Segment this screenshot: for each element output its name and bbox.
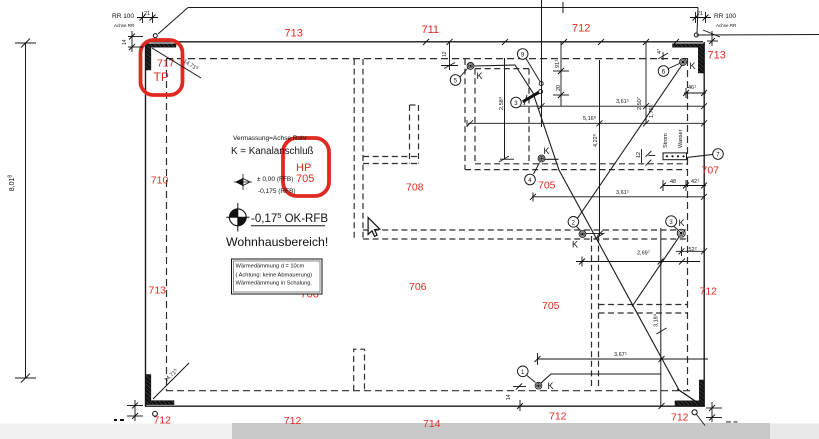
svg-text:TP: TP	[154, 70, 169, 84]
svg-text:711: 711	[422, 24, 440, 36]
svg-text:Strom: Strom	[663, 133, 669, 148]
svg-text:712: 712	[284, 415, 302, 427]
svg-text:Wohnhausbereich!: Wohnhausbereich!	[226, 235, 328, 249]
svg-text:K: K	[572, 240, 578, 250]
svg-text:K: K	[690, 61, 696, 71]
svg-text:712: 712	[671, 412, 689, 424]
svg-text:714: 714	[423, 418, 441, 430]
svg-text:Vermassung=Achse Rohr: Vermassung=Achse Rohr	[233, 135, 308, 142]
svg-text:706: 706	[409, 281, 427, 293]
svg-text:20: 20	[556, 85, 562, 91]
svg-text:21: 21	[697, 11, 703, 17]
svg-text:705: 705	[538, 180, 556, 192]
svg-text:712: 712	[549, 411, 567, 423]
svg-text:K: K	[679, 218, 685, 228]
svg-text:-0,175 OK-RFB: -0,175 OK-RFB	[251, 211, 328, 225]
svg-text:707: 707	[702, 165, 720, 177]
svg-text:713: 713	[149, 285, 167, 297]
svg-text:K: K	[477, 71, 483, 81]
svg-text:712: 712	[572, 23, 590, 35]
svg-text:Achse RR: Achse RR	[716, 23, 737, 28]
svg-text:± 0,00 (FFB): ± 0,00 (FFB)	[257, 176, 293, 183]
svg-text:705: 705	[542, 300, 560, 312]
svg-text:712: 712	[700, 286, 718, 298]
svg-text:12: 12	[636, 152, 642, 158]
svg-text:Wasser: Wasser	[678, 129, 684, 148]
svg-text:713: 713	[708, 50, 726, 62]
svg-text:( Achtung: keine Abmauerung): ( Achtung: keine Abmauerung)	[236, 272, 313, 278]
svg-text:K: K	[548, 381, 554, 391]
svg-text:Wärmedämmung d = 10cm: Wärmedämmung d = 10cm	[236, 263, 305, 269]
svg-text:14: 14	[506, 394, 512, 400]
svg-text:708: 708	[406, 182, 424, 194]
svg-text:RR 100: RR 100	[714, 13, 736, 20]
svg-text:Wärmedämmung in Schalung.: Wärmedämmung in Schalung.	[236, 280, 313, 286]
svg-text:14: 14	[122, 39, 128, 45]
svg-text:717: 717	[157, 58, 175, 70]
svg-text:710: 710	[151, 174, 169, 186]
svg-text:Achse RR: Achse RR	[114, 23, 135, 28]
svg-text:K: K	[544, 146, 550, 156]
svg-text:-0,175 (RFB): -0,175 (RFB)	[258, 188, 296, 195]
svg-text:705: 705	[296, 173, 314, 185]
svg-text:12: 12	[442, 51, 448, 57]
svg-text:RR 100: RR 100	[112, 13, 134, 20]
svg-text:21: 21	[144, 11, 150, 17]
svg-text:K = Kanalanschluß: K = Kanalanschluß	[231, 146, 314, 157]
svg-text:48: 48	[670, 179, 676, 185]
svg-text:713: 713	[285, 28, 303, 40]
